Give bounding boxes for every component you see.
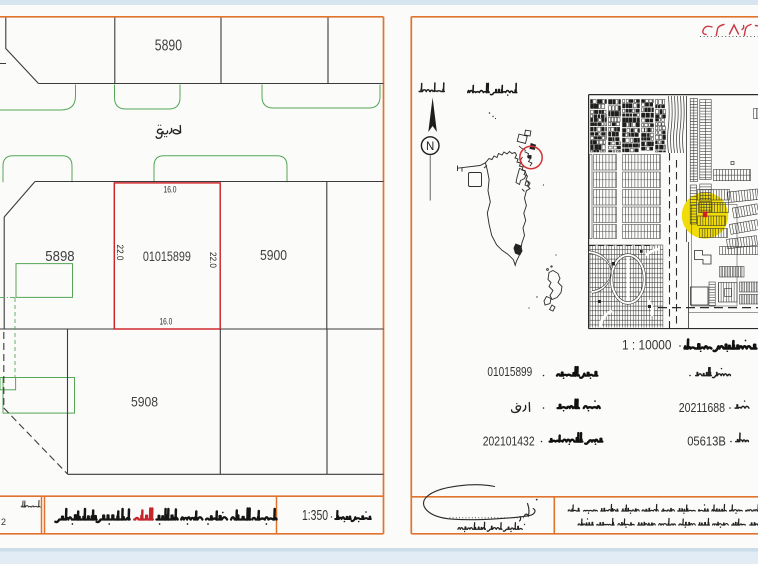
svg-text:01015899: 01015899 [487,364,532,379]
svg-text:1 : 10000: 1 : 10000 [622,338,672,353]
svg-text:5890: 5890 [155,38,182,55]
svg-text:01015899: 01015899 [143,248,191,264]
svg-text:202101432: 202101432 [483,433,535,448]
svg-text:5898: 5898 [45,248,74,265]
svg-text:05613B: 05613B [687,433,726,448]
svg-text:5900: 5900 [260,247,287,264]
svg-text:N: N [426,141,434,153]
svg-text:16.0: 16.0 [164,185,177,196]
svg-text:20211688: 20211688 [679,400,725,415]
svg-text:22.0: 22.0 [208,252,218,268]
svg-text:22.0: 22.0 [115,245,125,261]
svg-text:2: 2 [1,517,6,527]
svg-text:1:350: 1:350 [302,508,328,524]
svg-text:5908: 5908 [131,394,158,410]
svg-text:16.0: 16.0 [160,316,173,327]
